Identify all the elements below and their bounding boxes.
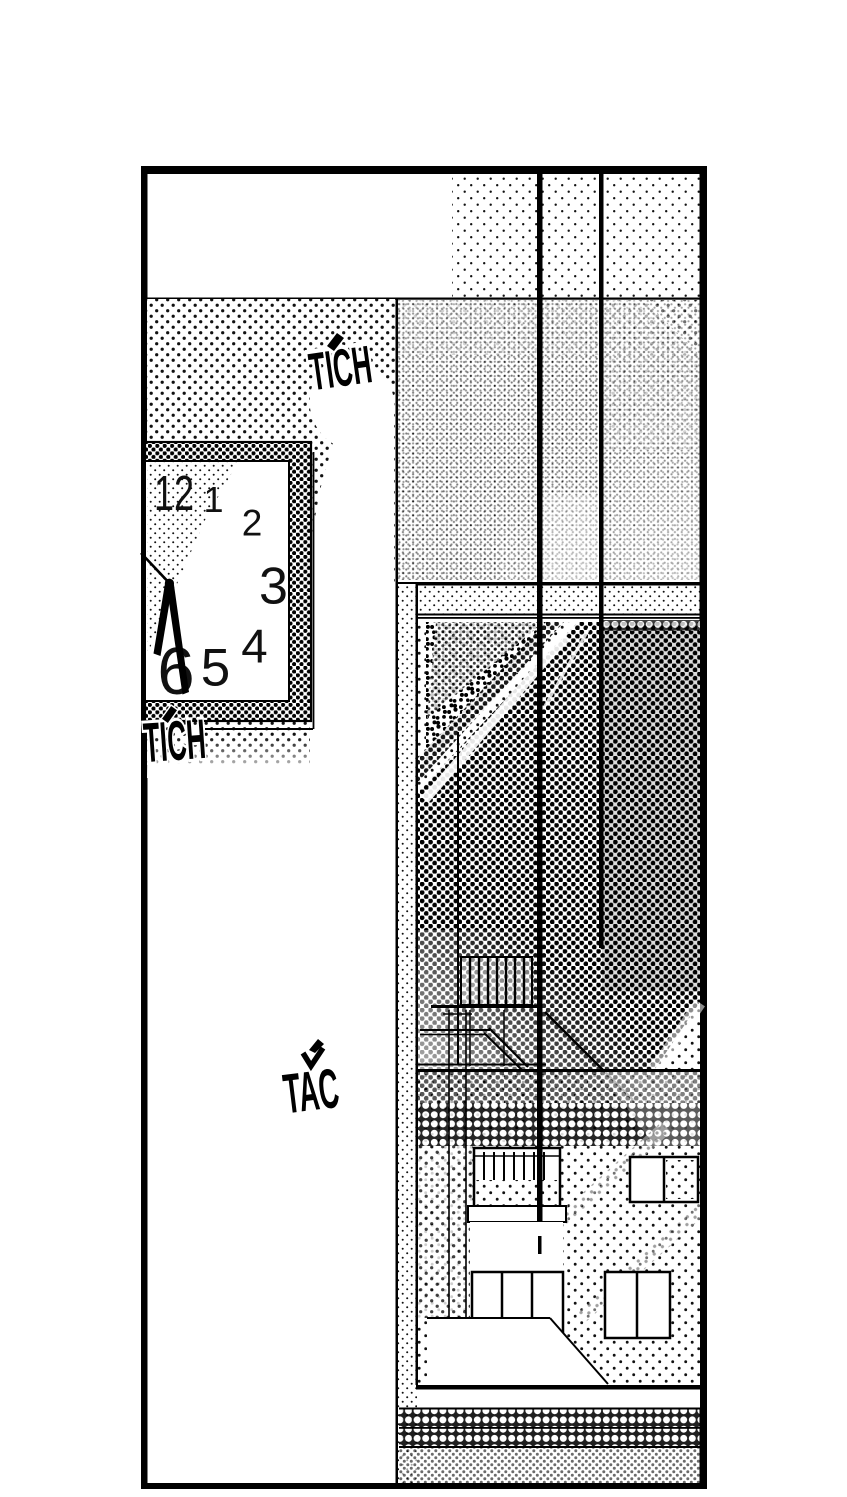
svg-text:TICH: TICH [306, 335, 376, 402]
svg-text:TICH: TICH [142, 707, 208, 774]
svg-text:5: 5 [201, 639, 230, 698]
svg-text:12: 12 [154, 467, 194, 521]
svg-text:4: 4 [241, 621, 267, 674]
svg-text:3: 3 [259, 558, 288, 616]
svg-text:2: 2 [242, 503, 263, 544]
svg-text:1: 1 [203, 479, 223, 520]
